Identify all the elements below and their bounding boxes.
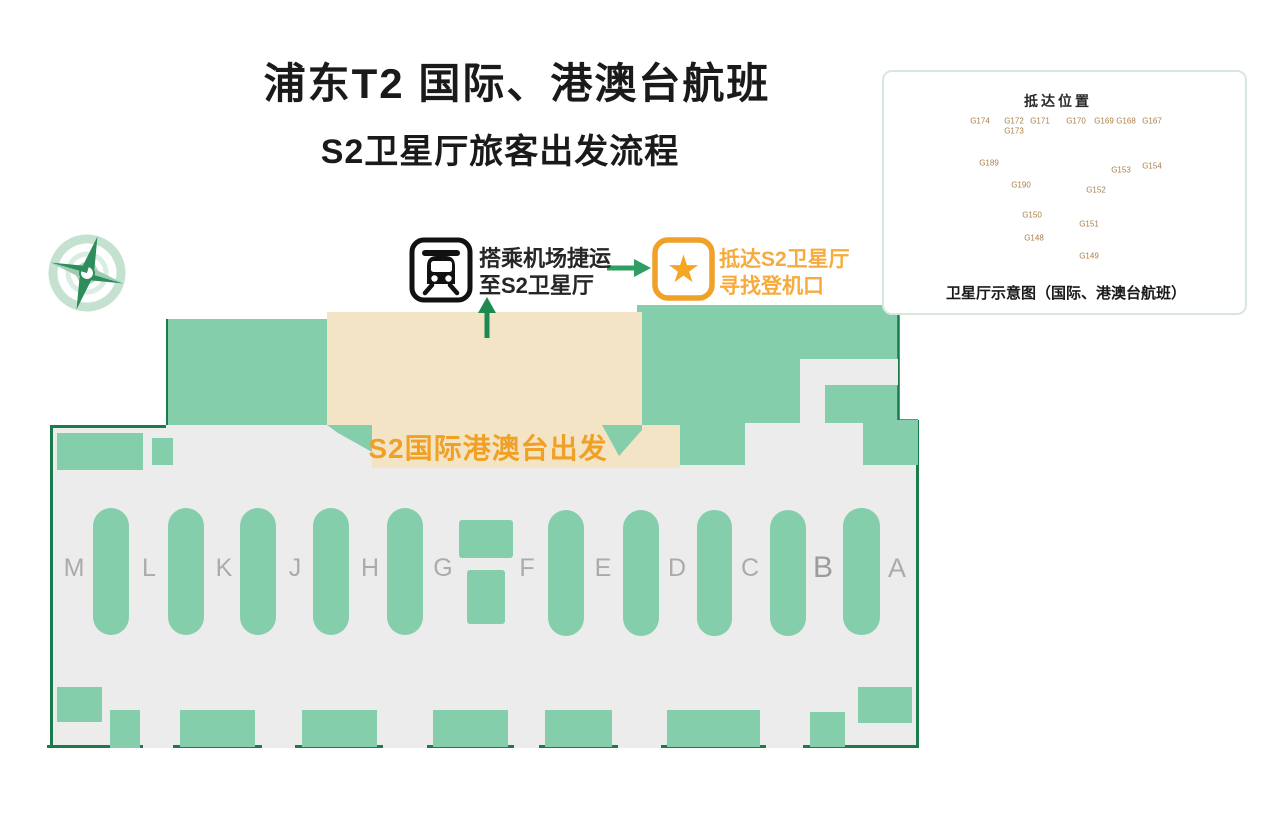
svg-text:★: ★ (666, 247, 700, 291)
gate-label: G168 (1116, 117, 1136, 126)
flow-step2-label: 抵达S2卫星厅 寻找登机口 (719, 246, 850, 300)
flow-step2-line2: 寻找登机口 (719, 273, 850, 300)
flow-step1-line1: 搭乘机场捷运 (479, 245, 611, 272)
gate-label: G169 (1094, 117, 1114, 126)
page-title: 浦东T2 国际、港澳台航班 (264, 50, 771, 111)
infographic-poster: ★ (0, 0, 1280, 820)
inset-title: 抵达位置 (1024, 91, 1092, 111)
gate-label: G171 (1030, 117, 1050, 126)
island-letter: J (289, 554, 302, 583)
island-letter: M (64, 554, 85, 583)
gate-label: G149 (1079, 252, 1099, 261)
gate-label: G154 (1142, 162, 1162, 171)
flow-step1-line2: 至S2卫星厅 (479, 272, 611, 299)
island-letter: K (216, 554, 233, 583)
gate-label: G150 (1022, 211, 1042, 220)
train-icon (412, 240, 470, 300)
gate-label: G153 (1111, 166, 1131, 175)
island-letter: A (888, 553, 906, 584)
island-letter: B (813, 551, 833, 585)
gate-label: G152 (1086, 186, 1106, 195)
flow-arrow-right (607, 259, 651, 277)
gate-label: G172 (1004, 117, 1024, 126)
gate-label: G173 (1004, 127, 1024, 136)
island-letter: D (668, 554, 686, 583)
gate-label: G189 (979, 159, 999, 168)
island-letter: C (741, 554, 759, 583)
gate-label: G190 (1011, 181, 1031, 190)
gate-label: G148 (1024, 234, 1044, 243)
flow-step2-line1: 抵达S2卫星厅 (719, 246, 850, 273)
island-letter: E (595, 554, 612, 583)
flow-step1-label: 搭乘机场捷运 至S2卫星厅 (479, 245, 611, 299)
inset-caption: 卫星厅示意图（国际、港澳台航班） (946, 282, 1186, 303)
gate-label: G174 (970, 117, 990, 126)
departure-area-label: S2国际港澳台出发 (368, 427, 607, 467)
compass-icon (40, 226, 134, 320)
star-badge-icon: ★ (655, 240, 712, 298)
gate-label: G167 (1142, 117, 1162, 126)
page-subtitle: S2卫星厅旅客出发流程 (321, 124, 680, 173)
gate-label: G151 (1079, 220, 1099, 229)
island-letter: H (361, 554, 379, 583)
gate-label: G170 (1066, 117, 1086, 126)
island-letter: F (519, 554, 534, 583)
island-letter: G (433, 554, 452, 583)
island-letter: L (142, 554, 156, 583)
